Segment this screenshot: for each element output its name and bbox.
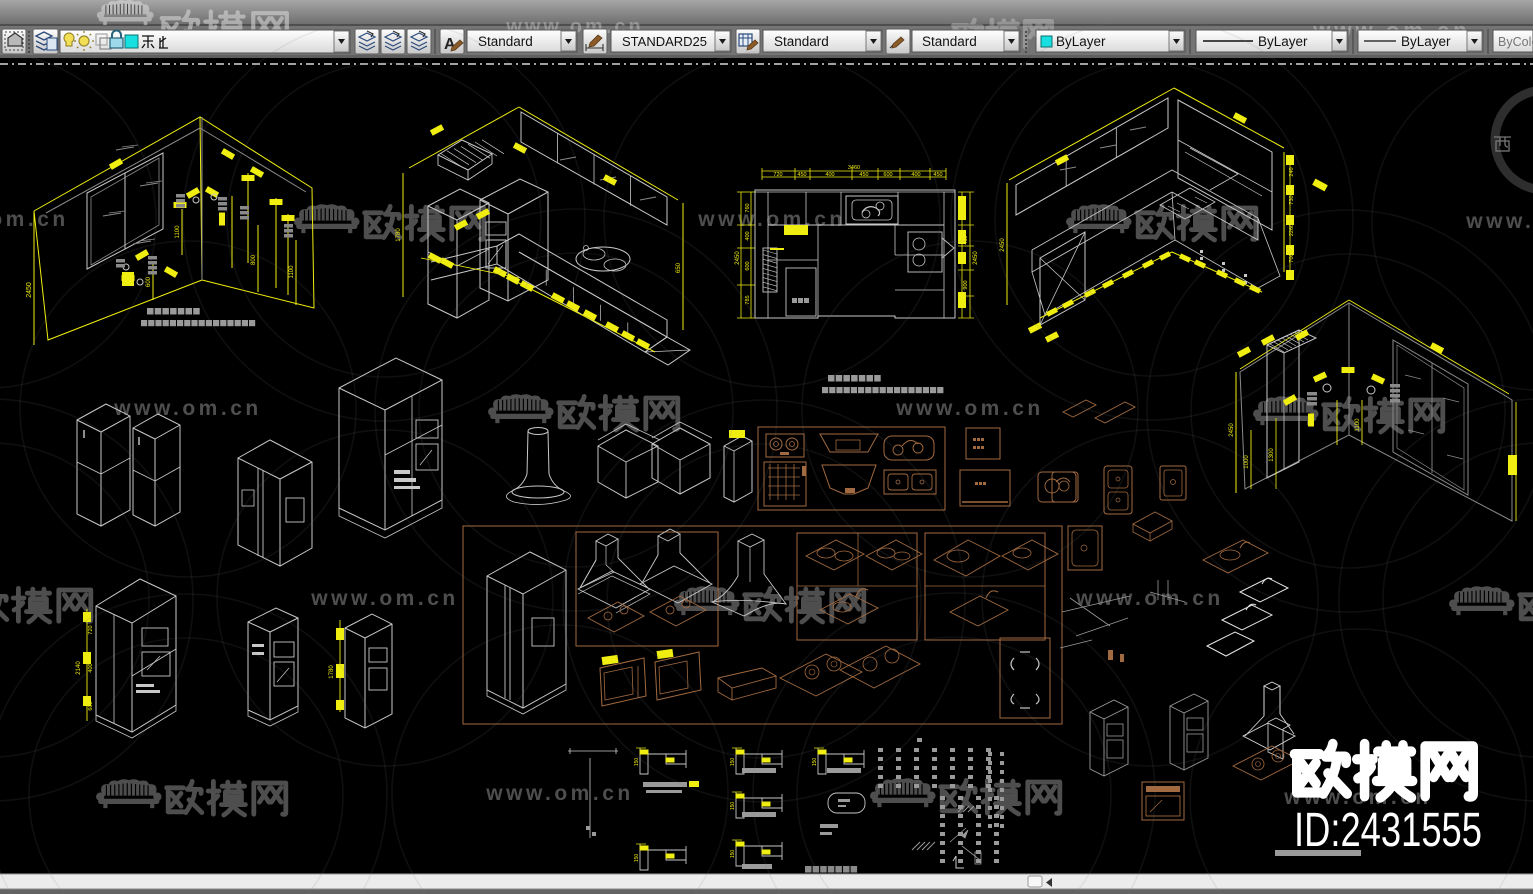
svg-text:2450: 2450 [735, 251, 741, 265]
svg-text:ByLayer: ByLayer [1258, 34, 1308, 49]
svg-text:www.om.cn: www.om.cn [485, 782, 633, 805]
svg-text:450: 450 [859, 172, 868, 178]
svg-text:150: 150 [730, 758, 736, 767]
svg-text:2260: 2260 [1289, 224, 1295, 236]
svg-text:ByColo: ByColo [1498, 35, 1533, 49]
svg-text:400: 400 [745, 231, 751, 240]
svg-text:650: 650 [676, 262, 682, 273]
svg-text:400: 400 [825, 172, 834, 178]
svg-text:2450: 2450 [26, 282, 33, 298]
svg-text:150: 150 [634, 854, 640, 863]
svg-text:www.om.cn: www.om.cn [895, 397, 1043, 420]
svg-text:600: 600 [88, 701, 94, 710]
svg-text:150: 150 [730, 802, 736, 811]
svg-text:ByLayer: ByLayer [1056, 34, 1106, 49]
svg-text:720: 720 [88, 625, 94, 634]
svg-text:www.om.cn: www.om.cn [1465, 210, 1533, 233]
svg-text:150: 150 [730, 850, 736, 859]
svg-text:600: 600 [883, 172, 892, 178]
svg-text:2450: 2450 [973, 251, 979, 265]
svg-text:450: 450 [797, 172, 806, 178]
svg-text:2140: 2140 [76, 661, 82, 675]
svg-text:240: 240 [1289, 167, 1295, 176]
svg-text:600: 600 [146, 276, 152, 287]
svg-text:3460: 3460 [848, 165, 860, 171]
svg-text:www.om.cn: www.om.cn [1075, 587, 1223, 610]
svg-text:ByLayer: ByLayer [1401, 34, 1451, 49]
svg-text:410: 410 [963, 235, 969, 244]
svg-text:Standard: Standard [922, 34, 977, 49]
svg-text:150: 150 [812, 758, 818, 767]
svg-text:www.om.cn: www.om.cn [697, 208, 845, 231]
svg-text:720: 720 [773, 172, 782, 178]
svg-text:1100: 1100 [175, 225, 181, 239]
svg-text:2450: 2450 [1229, 423, 1235, 437]
svg-text:www.om.cn: www.om.cn [310, 587, 458, 610]
svg-text:760: 760 [745, 203, 751, 212]
svg-text:Standard: Standard [774, 34, 829, 49]
svg-text:400: 400 [911, 172, 920, 178]
svg-text:1780: 1780 [396, 228, 402, 242]
svg-text:www.om.cn: www.om.cn [113, 397, 261, 420]
svg-text:1780: 1780 [329, 665, 335, 679]
svg-text:730: 730 [1289, 195, 1295, 204]
svg-text:1300: 1300 [1269, 448, 1275, 462]
svg-text:600: 600 [745, 261, 751, 270]
svg-text:ID:2431555: ID:2431555 [1294, 804, 1482, 857]
svg-text:STANDARD25: STANDARD25 [622, 34, 707, 49]
svg-text:1100: 1100 [1355, 418, 1361, 432]
